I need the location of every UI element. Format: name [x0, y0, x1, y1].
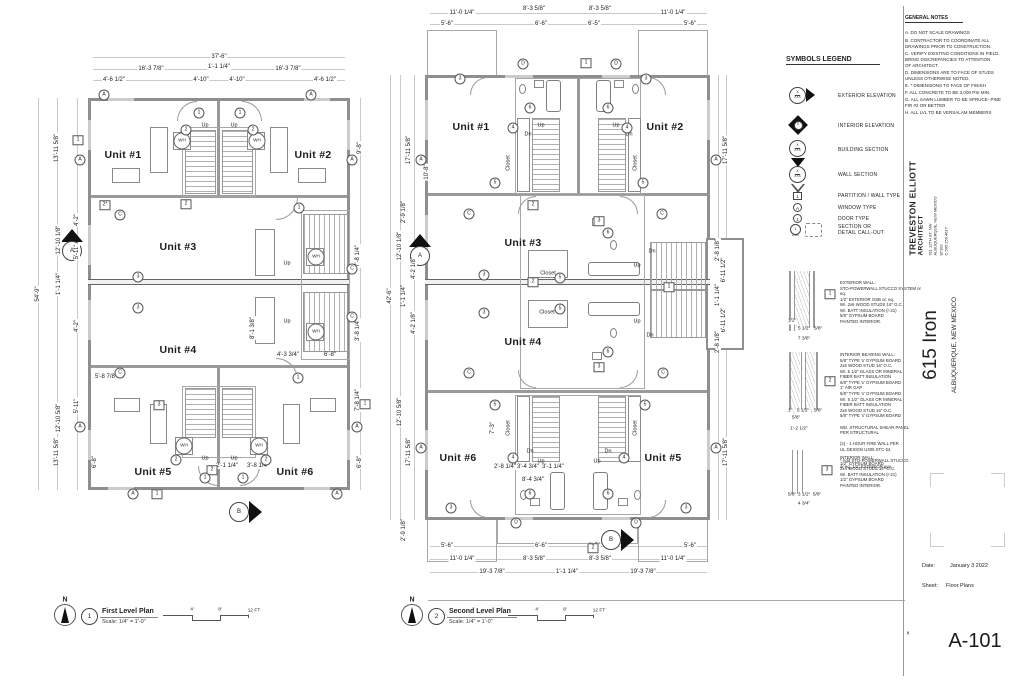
scale-bar-tick [192, 615, 193, 621]
project-name-block: 615 Iron [920, 275, 946, 415]
legend-label: EXTERIOR ELEVATION [838, 93, 896, 99]
window [425, 300, 428, 340]
annotation-label: Closet [506, 155, 512, 171]
dim-label: 10'-8" [424, 163, 430, 180]
wall-detail-line [802, 450, 803, 494]
dim-label: 13'-11 5/8" [54, 437, 60, 467]
dim-label: 2'-8 1/8" [715, 330, 721, 354]
dim-label: 7'-3" [490, 421, 496, 435]
dim-label: 6'-8" [323, 352, 337, 358]
reference-tag: 5 [490, 400, 501, 411]
wall-detail-line [809, 271, 810, 331]
dim-label: 4'-2 1/8" [411, 256, 417, 280]
legend-label: PARTITION / WALL TYPE [838, 193, 900, 199]
annotation-label: Up [593, 459, 600, 465]
unit-label: Unit #4 [159, 344, 196, 356]
scale-bar [537, 620, 565, 621]
dim-label: 5'-6" [683, 21, 697, 27]
closet [517, 118, 530, 192]
dim-label: 2'-8 1/4" [493, 464, 517, 470]
detail-dim-label: 5 1/2" [796, 410, 810, 415]
wall-detail-line [792, 450, 793, 494]
detail-dim-label: 7 3/8" [797, 338, 811, 343]
window [88, 225, 91, 265]
dim-label: 19'-3 7/8" [629, 569, 656, 575]
reference-tag: 1 [238, 473, 249, 484]
general-note-item: F. ALL CONCRETE TO BE 3,000 PSI MIN. [905, 90, 1023, 96]
balcony [427, 30, 497, 77]
scale-bar-tick [565, 615, 566, 621]
reference-tag: 2 [248, 125, 259, 136]
stamp-corner [930, 533, 944, 547]
detail-dim-label: 4' [189, 609, 195, 614]
detail-dim-label: 5/8" [791, 417, 801, 422]
annotation-label: Up [201, 123, 208, 129]
reference-tag: 6 [525, 489, 536, 500]
window [347, 120, 350, 150]
reference-tag: C [115, 368, 126, 379]
reference-tag: 6 [603, 489, 614, 500]
dim-label: 4'-10" [192, 77, 209, 83]
reference-tag: A [99, 90, 110, 101]
reference-tag: 6 [603, 103, 614, 114]
annotation-label: Closet [539, 310, 555, 316]
legend-label: SECTION OR DETAIL CALL-OUT [838, 224, 884, 236]
annotation-label: Up [537, 123, 544, 129]
unit-label: Unit #4 [504, 336, 541, 348]
scale-bar [565, 615, 593, 616]
dim-label: 2'-9 1/8" [401, 518, 407, 542]
toilet [610, 328, 617, 338]
reference-tag: A [75, 155, 86, 166]
architect-address: 611 12TH ST. NW ALBUQUERQUE, NEW MEXICO … [928, 116, 950, 256]
symbol-text: XXX [794, 96, 801, 100]
dim-label: 4'-10" [228, 77, 245, 83]
reference-tag: C [347, 312, 358, 323]
wall-type-tag: 3 [594, 216, 605, 226]
reference-tag: 4 [619, 453, 630, 464]
stairs [532, 118, 560, 192]
reference-tag: 1 [194, 108, 205, 119]
titleblock-divider [903, 6, 904, 676]
unit-label: Unit #1 [452, 121, 489, 133]
kitchen-counter [255, 229, 275, 276]
dim-label: 19'-3 7/8" [478, 569, 505, 575]
general-note-item: C. VERIFY EXISTING CONDITIONS IN FIELD. … [905, 51, 1023, 69]
interior-elevation-circle: X [794, 121, 803, 130]
elevation-marker-label: A [70, 248, 74, 254]
reference-tag: 6 [603, 228, 614, 239]
wall-type-tag: 2 [528, 277, 539, 287]
reference-tag: D [631, 518, 642, 529]
stamp-corner [991, 533, 1005, 547]
general-note-item: E. * DIMENSIONS TO FACE OF FINISH [905, 83, 1023, 89]
dim-label: 5'-11" [74, 244, 80, 261]
reference-tag: 3 [133, 272, 144, 283]
dim-label: 1'-1 1/4" [56, 272, 62, 296]
stairs [532, 396, 560, 462]
wall-type-tag: 1 [664, 282, 675, 292]
wall [577, 78, 580, 195]
dim-label: 4'-2" [74, 319, 80, 333]
sink [592, 352, 602, 360]
kitchen-island [114, 398, 140, 412]
stairs [650, 242, 706, 290]
wall-type-tag: 3 [154, 400, 165, 410]
reference-tag: 5 [555, 273, 566, 284]
dim-label: 4'-2" [74, 213, 80, 227]
general-note-item: B. CONTRACTOR TO COORDINATE ALL DRAWINGS… [905, 38, 1023, 50]
dim-label: 8'-3 5/8" [588, 556, 612, 562]
reference-tag: A [347, 155, 358, 166]
sheet-value: Floor Plans [946, 583, 974, 589]
dim-label: 11'-0 1/4" [449, 556, 476, 562]
bathtub [546, 80, 561, 112]
elevation-marker-arrow [249, 501, 262, 523]
title-underline [100, 617, 158, 618]
annotation-label: Closet [633, 155, 639, 171]
reference-tag: 5 [638, 178, 649, 189]
window-tag-symbol: A [793, 203, 802, 212]
legend-title: SYMBOLS LEGEND [786, 56, 880, 65]
annotation-label: Closet [506, 420, 512, 436]
water-heater-tag: WH [308, 249, 325, 266]
kitchen-counter [150, 127, 168, 173]
annotation-label: Dn [604, 449, 611, 455]
dim-label: 6'-11 1/2" [721, 257, 727, 284]
detail-dim-label: 1'-2 1/2" [789, 428, 809, 433]
dim-label: 1'-1 1/4" [715, 283, 721, 307]
annotation-label: Up [283, 319, 290, 325]
reference-tag: 5 [640, 400, 651, 411]
unit-label: Unit #1 [104, 149, 141, 161]
reference-tag: C [115, 210, 126, 221]
unit-label: Unit #3 [159, 241, 196, 253]
wall-type-tag: 2 [588, 543, 599, 553]
window [347, 430, 350, 460]
reference-tag: D [511, 518, 522, 529]
annotation-label: Up [633, 319, 640, 325]
annotation-label: Up [230, 456, 237, 462]
wall-section-arrow-inner [793, 184, 803, 190]
bathtub [588, 302, 640, 316]
wall-type-tag: 1 [581, 58, 592, 68]
partition-tag-symbol: 1 [793, 192, 802, 200]
dim-label: 4'-6 1/2" [313, 77, 337, 83]
dim-label: 1'-1 1/4" [401, 284, 407, 308]
annotation-label: Up [612, 123, 619, 129]
dim-label: 6'-5" [587, 21, 601, 27]
reference-tag: 2 [181, 125, 192, 136]
annotation-label: Up [633, 263, 640, 269]
dim-label: 2'-9 1/8" [401, 200, 407, 224]
annotation-label: Dn [648, 249, 655, 255]
dim-label: 11'-0 1/4" [660, 10, 687, 16]
dim-label: 8'-1 3/8" [250, 316, 256, 340]
kitchen-counter [283, 404, 300, 444]
annotation-label: Dn [524, 132, 531, 138]
date-label: Date: [922, 563, 935, 569]
reference-tag: A [128, 489, 139, 500]
dim-label: 6'-8" [357, 455, 363, 469]
stairs [222, 388, 253, 438]
bathtub [588, 262, 640, 276]
annotation-label: Up [283, 261, 290, 267]
balcony [638, 30, 708, 77]
unit-label: Unit #2 [646, 121, 683, 133]
dim-label: 6'-6" [534, 21, 548, 27]
plan-scale: Scale: 1/4" = 1'-0" [449, 619, 493, 625]
symbol-text: XXX [794, 149, 801, 153]
dim-label: 17'-11 5/8" [406, 437, 412, 467]
dim-label: 1'-1 1/4" [207, 64, 231, 70]
reference-tag: 3 [479, 308, 490, 319]
reference-tag: A [416, 155, 427, 166]
wall-detail-hatch [791, 352, 800, 414]
elevation-marker-arrow [621, 529, 634, 551]
wall-type-tag: 1 [152, 489, 163, 499]
kitchen-counter [150, 404, 167, 444]
general-note-item: A. DO NOT SCALE DRAWINGS [905, 30, 1023, 36]
wall-note-2: INTERIOR BEARING WALL: 5/8" TYPE 'x' GYP… [840, 352, 926, 469]
toilet [610, 240, 617, 250]
scale-bar-tick [220, 615, 221, 621]
north-label: N [62, 597, 67, 604]
annotation-label: Up [201, 456, 208, 462]
callout-detail-box [805, 223, 822, 237]
building-section-symbol: X XXX [789, 140, 806, 157]
wall-type-tag: 1 [825, 289, 836, 299]
dim-label: 5'-6" [440, 21, 454, 27]
dim-label: 3'-1 1/4" [541, 464, 565, 470]
kitchen-island [310, 398, 336, 412]
unit-label: Unit #5 [644, 452, 681, 464]
reference-tag: 5 [490, 178, 501, 189]
wall-type-tag: 2 [528, 200, 539, 210]
dim-label: 1'-1 1/4" [555, 569, 579, 575]
detail-dim-label: 8' [217, 609, 223, 614]
wall [428, 390, 707, 393]
stamp-corner [991, 473, 1005, 487]
wall-detail-line [813, 271, 815, 331]
reference-tag: A [332, 489, 343, 500]
wall-section-symbol: X XXX [789, 166, 806, 183]
dim-label: 8'-3 5/8" [588, 6, 612, 12]
north-needle [408, 607, 416, 623]
detail-dim-label: 4 3/4" [797, 503, 811, 508]
detail-dim-label: 12 FT [592, 610, 607, 615]
reference-tag: 3 [479, 270, 490, 281]
exterior-elevation-symbol: X XXX [789, 87, 806, 104]
detail-dim-label: 5 1/2" [797, 328, 811, 333]
water-heater-tag: WH [251, 438, 268, 455]
water-heater-tag: WH [176, 438, 193, 455]
window [707, 100, 710, 140]
callout-symbol: 1 A-RG [790, 224, 801, 235]
title-underline [447, 617, 517, 618]
symbol-text: 1 [795, 227, 797, 231]
detail-dim-label: 1/2" [787, 320, 797, 325]
dim-label: 5'-11" [74, 398, 80, 415]
symbol-text: XXX [794, 175, 801, 179]
north-needle [61, 607, 69, 623]
sheet-label: Sheet: [922, 583, 938, 589]
dim-label: 37'-6" [210, 54, 227, 60]
reference-tag: C [347, 264, 358, 275]
reference-tag: 3 [681, 503, 692, 514]
reference-tag: A [352, 422, 363, 433]
plan-number-bubble: 1 [81, 608, 98, 625]
detail-dim-label: 1" [787, 410, 793, 415]
dim-label: 9'-8" [357, 141, 363, 155]
dim-label: 17'-11 5/8" [406, 135, 412, 165]
core [520, 195, 645, 389]
reference-tag: 4 [508, 123, 519, 134]
wall-type-tag: 2* [100, 200, 111, 210]
reference-tag: C [464, 368, 475, 379]
kitchen-counter [270, 127, 288, 173]
window [505, 75, 533, 78]
reference-tag: A [711, 443, 722, 454]
dim-label: 17'-11 5/8" [723, 135, 729, 165]
detail-dim-label: 5/8" [787, 494, 797, 499]
toilet [632, 84, 639, 94]
annotation-label: Up [230, 123, 237, 129]
dim-line [93, 80, 345, 81]
detail-dim-label: 12 FT [247, 610, 262, 615]
date-value: January 3 2022 [950, 563, 988, 569]
dim-label: 8'-3 5/8" [522, 6, 546, 12]
project-location: ALBUQUERQUE, NEW MEXICO [951, 285, 958, 405]
unit-label: Unit #6 [276, 466, 313, 478]
dim-label: 6'-8" [92, 455, 98, 469]
reference-tag: C [657, 209, 668, 220]
reference-tag: C [658, 368, 669, 379]
window [304, 487, 330, 490]
sink [618, 498, 628, 506]
architect-name: TREVESTON ELLIOTT [908, 116, 918, 256]
reference-tag: D [518, 59, 529, 70]
reference-tag: 6 [525, 103, 536, 114]
annotation-label: Dn [526, 449, 533, 455]
architect-role: ARCHITECT [918, 116, 925, 256]
dim-label: 16'-3 7/8" [137, 66, 164, 72]
reference-tag: 1 [235, 108, 246, 119]
wall-type-tag: 2 [181, 199, 192, 209]
dim-label: 12'-10 5/8" [56, 403, 62, 434]
bathtub [550, 472, 565, 510]
detail-dim-label: 4' [534, 609, 540, 614]
wall-detail-hatch [806, 352, 815, 414]
legend-label: DOOR TYPE [838, 216, 869, 222]
reference-tag: A [75, 422, 86, 433]
drawing-sheet: N 1 First Level Plan Scale: 1/4" = 1'-0"… [0, 0, 1024, 683]
sink [614, 80, 624, 88]
dim-label: 8'-3 5/8" [522, 556, 546, 562]
general-notes-title: GENERAL NOTES [905, 15, 963, 23]
reference-tag: 2 [171, 455, 182, 466]
window [88, 120, 91, 150]
wall-type-tag: 2 [825, 376, 836, 386]
dim-label: 16'-3 7/8" [274, 66, 301, 72]
reference-tag: 3 [446, 503, 457, 514]
annotation-label: Dn [646, 333, 653, 339]
kitchen-counter [255, 297, 275, 344]
elevation-marker-label: A [418, 253, 422, 259]
dim-line [414, 75, 415, 520]
dim-line [430, 24, 707, 25]
scale-bar [220, 615, 248, 616]
symbol-text: A-RG [792, 233, 799, 237]
wall-type-tag: 1 [73, 135, 84, 145]
reference-tag: A [306, 90, 317, 101]
architect-stamp-text: TREVESTON ELLIOTT ARCHITECT 611 12TH ST.… [908, 116, 963, 256]
general-note-item: D. DIMENSIONS ARE TO FACE OF STUDS UNLES… [905, 70, 1023, 82]
general-note-item: G. ALL SAWN LUMBER TO BE SPRUCE- PINE FI… [905, 97, 1023, 109]
window [707, 430, 710, 470]
reference-tag: 1 [200, 473, 211, 484]
toilet [634, 490, 641, 500]
reference-tag: 1 [293, 373, 304, 384]
reference-tag: 1 [294, 203, 305, 214]
kitchen-island [298, 168, 326, 183]
wall-detail-line [801, 352, 802, 414]
elevation-marker-label: B [237, 509, 241, 515]
plan-title: First Level Plan [102, 608, 154, 615]
stairs [185, 388, 216, 438]
dim-label: 5'-6" [683, 543, 697, 549]
dim-label: 11'-0 1/4" [660, 556, 687, 562]
reference-tag: 3 [641, 74, 652, 85]
reference-tag: 4 [508, 453, 519, 464]
water-heater-tag: WH [308, 324, 325, 341]
window [602, 517, 630, 520]
dim-label: 11'-0 1/4" [449, 10, 476, 16]
sheet-number: A-101 [930, 630, 1020, 653]
door-tag-symbol: 1 [793, 214, 802, 223]
stairs [650, 290, 706, 338]
project-name: 615 Iron [920, 275, 942, 415]
reference-tag: 3 [133, 303, 144, 314]
detail-dim-label: 8' [562, 609, 568, 614]
plan-scale: Scale: 1/4" = 1'-0" [102, 619, 146, 625]
project-location-block: ALBUQUERQUE, NEW MEXICO [951, 285, 965, 405]
legend-label: WALL SECTION [838, 172, 877, 178]
dim-label: 12'-10 1/8" [56, 225, 62, 256]
wall-detail-line [816, 352, 818, 414]
dim-label: 17'-11 5/8" [723, 437, 729, 467]
unit-label: Unit #2 [294, 149, 331, 161]
dim-label: 4'-6 1/2" [102, 77, 126, 83]
reference-tag: A [416, 443, 427, 454]
dim-label: 3'-8 1/4" [355, 318, 361, 342]
wall-note-3: INTERIOR WALL: 1/2" GYPSUM BOARD 2x4 WOO… [840, 455, 926, 488]
dim-label: 54'-9" [35, 285, 41, 302]
detail-dim-label: 5/8" [813, 410, 823, 415]
exterior-elevation-arrow [806, 88, 815, 102]
reference-tag: 4 [622, 123, 633, 134]
dim-label: 4'-3 3/4" [276, 352, 300, 358]
unit-label: Unit #5 [134, 466, 171, 478]
north-label: N [409, 597, 414, 604]
dim-label: 8'-4 3/4" [521, 477, 545, 483]
detail-dim-label: 5/8" [812, 494, 822, 499]
annotation-label: x [907, 631, 910, 637]
plan-number-bubble: 2 [428, 608, 445, 625]
annotation-label: Closet [633, 420, 639, 436]
symbol-text: X [797, 123, 799, 127]
sink [534, 80, 544, 88]
